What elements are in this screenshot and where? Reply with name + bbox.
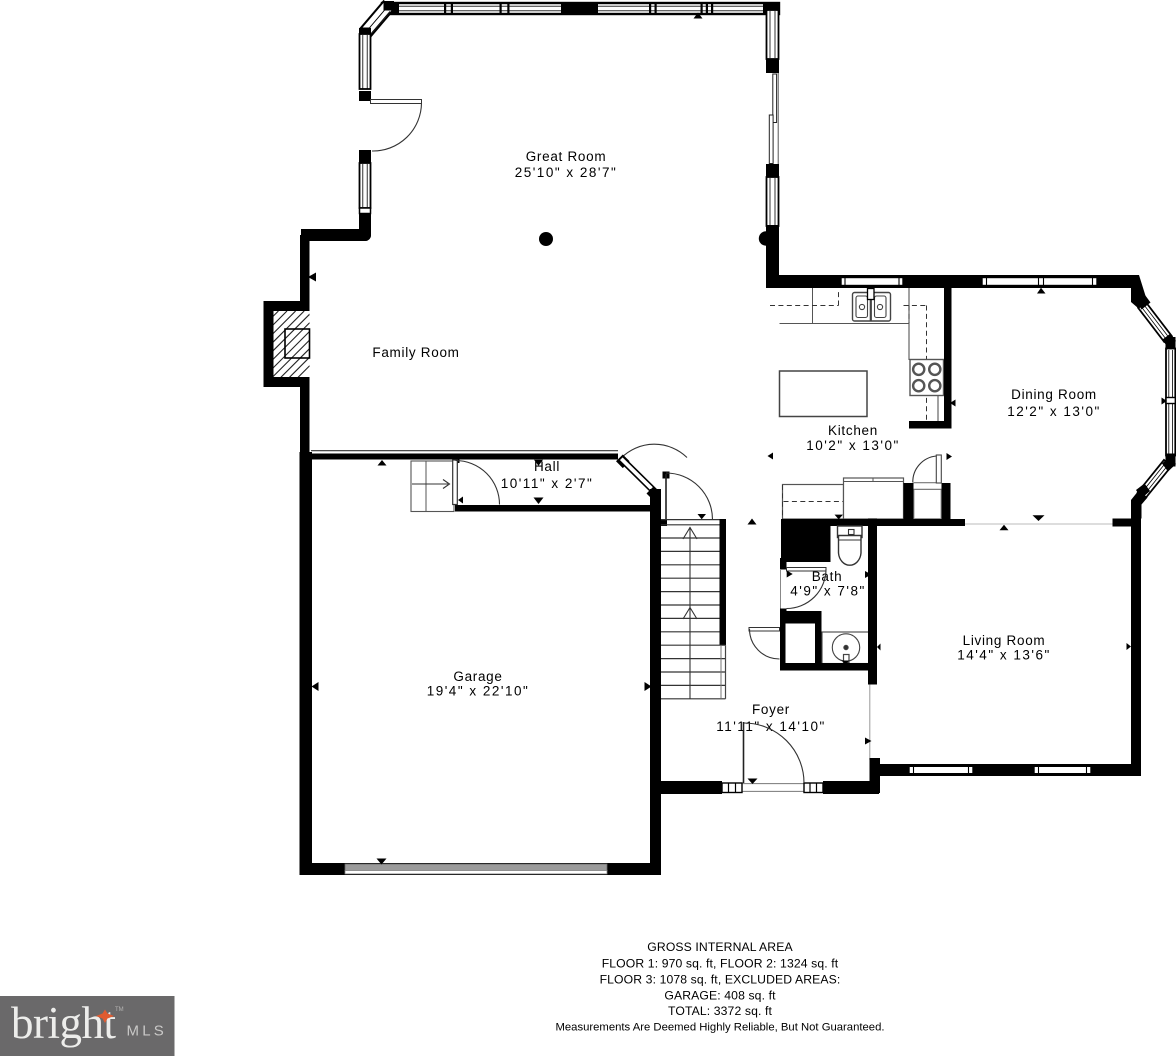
svg-text:GROSS INTERNAL AREA: GROSS INTERNAL AREA: [647, 940, 793, 954]
svg-text:4'9" x 7'8": 4'9" x 7'8": [790, 584, 866, 599]
svg-text:FLOOR 3: 1078 sq. ft, EXCLUDED: FLOOR 3: 1078 sq. ft, EXCLUDED AREAS:: [600, 973, 841, 987]
svg-text:Measurements Are Deemed Highly: Measurements Are Deemed Highly Reliable,…: [555, 1022, 884, 1034]
svg-text:14'4" x 13'6": 14'4" x 13'6": [957, 648, 1051, 663]
svg-text:Great Room: Great Room: [526, 149, 607, 164]
svg-text:TM: TM: [115, 1007, 124, 1013]
svg-text:FLOOR 1: 970 sq. ft, FLOOR 2:: FLOOR 1: 970 sq. ft, FLOOR 2: 1324 sq. f…: [602, 957, 839, 971]
svg-text:11'11" x 14'10": 11'11" x 14'10": [716, 719, 826, 734]
svg-text:10'2" x 13'0": 10'2" x 13'0": [806, 438, 900, 453]
svg-text:Garage: Garage: [453, 669, 502, 684]
svg-text:Foyer: Foyer: [752, 702, 790, 717]
svg-text:19'4" x 22'10": 19'4" x 22'10": [427, 684, 530, 699]
svg-text:GARAGE: 408 sq. ft: GARAGE: 408 sq. ft: [664, 989, 776, 1003]
svg-text:TOTAL: 3372 sq. ft: TOTAL: 3372 sq. ft: [668, 1004, 772, 1018]
svg-text:12'2" x 13'0": 12'2" x 13'0": [1007, 404, 1101, 419]
svg-text:Kitchen: Kitchen: [828, 423, 878, 438]
svg-text:bright: bright: [11, 998, 116, 1048]
svg-text:Dining Room: Dining Room: [1011, 387, 1097, 402]
svg-text:25'10" x 28'7": 25'10" x 28'7": [515, 165, 618, 180]
svg-text:10'11" x 2'7": 10'11" x 2'7": [501, 476, 594, 491]
svg-text:Living Room: Living Room: [963, 633, 1046, 648]
svg-text:MLS: MLS: [127, 1023, 167, 1040]
svg-text:Family Room: Family Room: [372, 345, 459, 360]
